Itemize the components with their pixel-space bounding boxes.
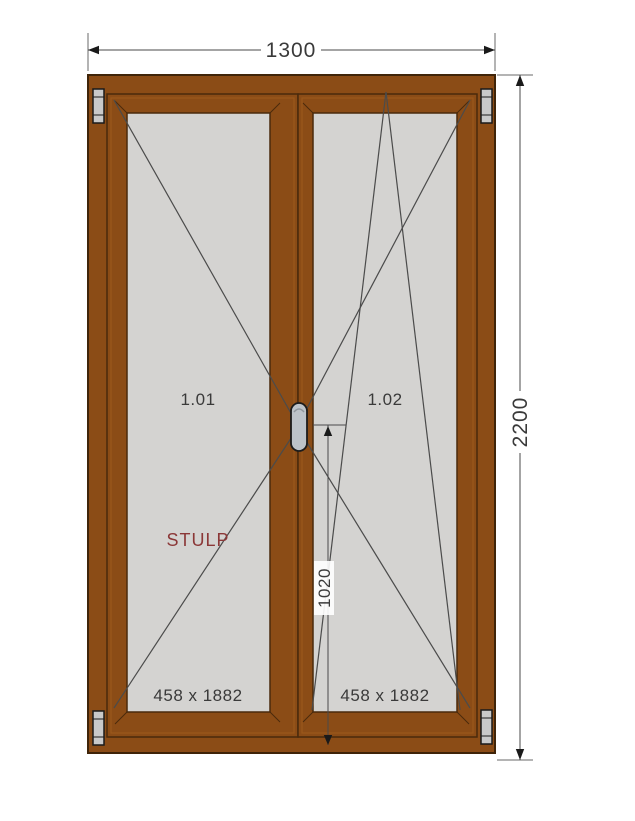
dimension-width: 1300 bbox=[88, 33, 495, 71]
pane-size-right: 458 x 1882 bbox=[340, 686, 429, 705]
window-handle-icon bbox=[291, 403, 307, 451]
hinge-bottom-left-icon bbox=[93, 711, 104, 745]
glass-pane-right bbox=[313, 113, 457, 712]
hinge-top-left-icon bbox=[93, 89, 104, 123]
window-drawing-canvas: 1300 2200 1020 1.01 1.02 STULP 458 x 188… bbox=[0, 0, 635, 821]
pane-id-right: 1.02 bbox=[367, 390, 402, 409]
dimension-height: 2200 bbox=[497, 75, 533, 760]
pane-id-left: 1.01 bbox=[180, 390, 215, 409]
window-drawing-svg: 1300 2200 1020 1.01 1.02 STULP 458 x 188… bbox=[0, 0, 635, 821]
dimension-width-label: 1300 bbox=[266, 39, 317, 62]
hinge-top-right-icon bbox=[481, 89, 492, 123]
pane-size-left: 458 x 1882 bbox=[153, 686, 242, 705]
dimension-height-label: 2200 bbox=[509, 397, 532, 448]
dimension-handle-height-label: 1020 bbox=[315, 568, 334, 608]
glass-pane-left bbox=[127, 113, 270, 712]
hinge-bottom-right-icon bbox=[481, 710, 492, 744]
stulp-label: STULP bbox=[166, 530, 229, 550]
